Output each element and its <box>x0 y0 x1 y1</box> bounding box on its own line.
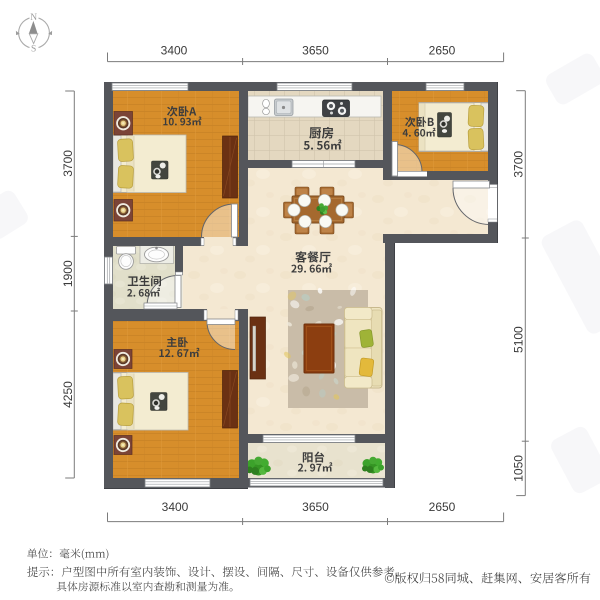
svg-text:3400: 3400 <box>162 500 189 514</box>
svg-text:3700: 3700 <box>61 150 75 177</box>
svg-text:S: S <box>31 45 36 55</box>
svg-text:2650: 2650 <box>429 44 456 58</box>
svg-text:2650: 2650 <box>429 500 456 514</box>
svg-text:N: N <box>30 13 37 23</box>
svg-text:3400: 3400 <box>161 44 188 58</box>
svg-text:4250: 4250 <box>61 381 75 408</box>
svg-text:3650: 3650 <box>302 500 329 514</box>
svg-text:1900: 1900 <box>61 260 75 287</box>
svg-text:3700: 3700 <box>512 151 526 178</box>
svg-text:5100: 5100 <box>512 326 526 353</box>
svg-text:3650: 3650 <box>302 44 329 58</box>
svg-text:1050: 1050 <box>512 455 526 482</box>
